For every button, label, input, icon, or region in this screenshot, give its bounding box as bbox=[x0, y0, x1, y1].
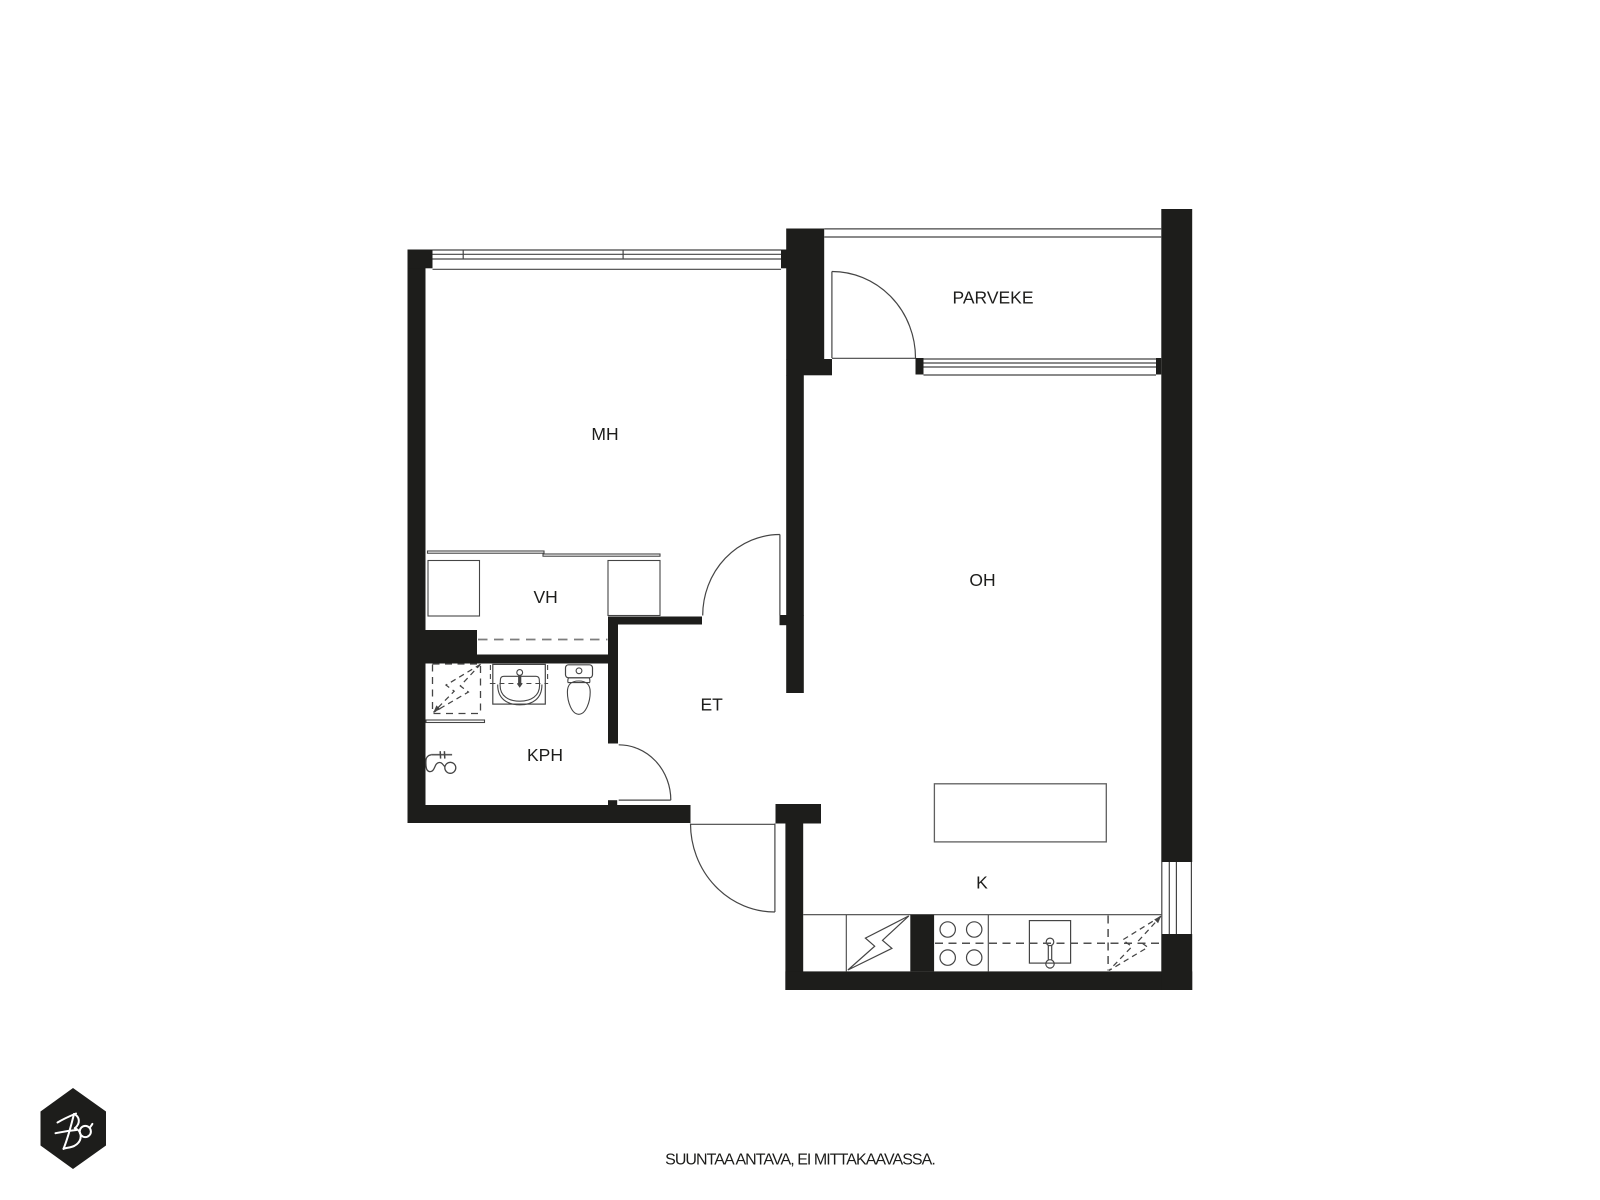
svg-text:K: K bbox=[976, 873, 988, 893]
svg-text:OH: OH bbox=[969, 570, 995, 590]
svg-text:MH: MH bbox=[591, 424, 618, 444]
svg-text:SUUNTAA ANTAVA, EI MITTAKAAVAS: SUUNTAA ANTAVA, EI MITTAKAAVASSA. bbox=[665, 1152, 935, 1169]
svg-text:VH: VH bbox=[533, 587, 557, 607]
svg-text:PARVEKE: PARVEKE bbox=[952, 288, 1033, 308]
svg-text:ET: ET bbox=[701, 695, 724, 715]
svg-text:KPH: KPH bbox=[527, 745, 563, 765]
